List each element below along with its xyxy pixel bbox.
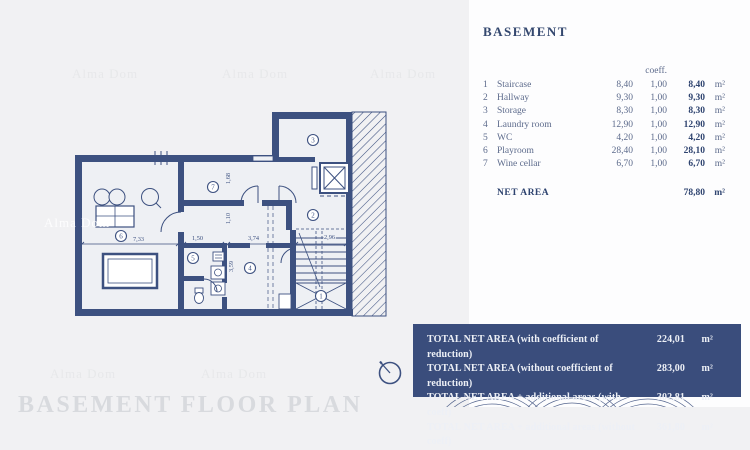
watermark: Alma Dom [72, 66, 138, 82]
svg-text:5: 5 [191, 255, 195, 263]
table-header: coeff. [483, 66, 725, 79]
svg-text:1,10: 1,10 [225, 213, 232, 224]
watermark: Alma Dom [222, 66, 288, 82]
total-row: TOTAL NET AREA + additional areas (with … [427, 391, 713, 420]
round-table-icon [142, 189, 159, 206]
sink-icon [213, 252, 224, 261]
table-row: 2Hallway9,301,009,30m² [483, 92, 725, 105]
total-row: TOTAL NET AREA (with coefficient of redu… [427, 333, 713, 362]
svg-text:1,68: 1,68 [225, 173, 232, 184]
washer-icon [211, 282, 225, 295]
watermark: Alma Dom [201, 366, 267, 382]
watermark: Alma Dom [370, 66, 436, 82]
net-area-row: NET AREA 78,80 m² [483, 188, 725, 198]
table-row: 4Laundry room12,901,0012,90m² [483, 119, 725, 132]
total-row: TOTAL NET AREA + additional areas (witho… [427, 421, 713, 450]
armchair-icon [109, 189, 125, 205]
svg-text:2,96: 2,96 [324, 234, 335, 241]
total-row: TOTAL NET AREA (without coefficient of r… [427, 362, 713, 391]
svg-text:3,59: 3,59 [228, 261, 235, 272]
svg-text:1: 1 [319, 293, 323, 301]
watermark: Alma Dom [44, 215, 110, 231]
washer-icon [211, 266, 225, 279]
table-row: 5WC4,201,004,20m² [483, 132, 725, 145]
totals-box: TOTAL NET AREA (with coefficient of redu… [413, 324, 741, 397]
svg-text:4: 4 [248, 265, 252, 273]
basement-title: BASEMENT [483, 24, 568, 40]
north-indicator-icon [380, 362, 401, 384]
cabinet-icon [279, 294, 291, 309]
plan-title: BASEMENT FLOOR PLAN [18, 392, 362, 419]
svg-text:7: 7 [211, 184, 215, 192]
hatched-wall [352, 112, 386, 316]
watermark: Alma Dom [50, 366, 116, 382]
svg-text:3,74: 3,74 [248, 235, 260, 242]
coeff-column-header: coeff. [633, 66, 667, 79]
table-row: 1Staircase8,401,008,40m² [483, 79, 725, 92]
area-table: coeff. 1Staircase8,401,008,40m² 2Hallway… [483, 66, 725, 198]
table-row: 3Storage8,301,008,30m² [483, 105, 725, 118]
table-row: 6Playroom28,401,0028,10m² [483, 145, 725, 158]
svg-text:2: 2 [311, 212, 315, 220]
table-row: 7Wine cellar6,701,006,70m² [483, 158, 725, 171]
armchair-icon [94, 189, 110, 205]
svg-text:6: 6 [119, 233, 123, 241]
svg-text:7,33: 7,33 [133, 236, 144, 243]
svg-text:3: 3 [311, 137, 315, 145]
svg-text:1,50: 1,50 [192, 235, 203, 242]
